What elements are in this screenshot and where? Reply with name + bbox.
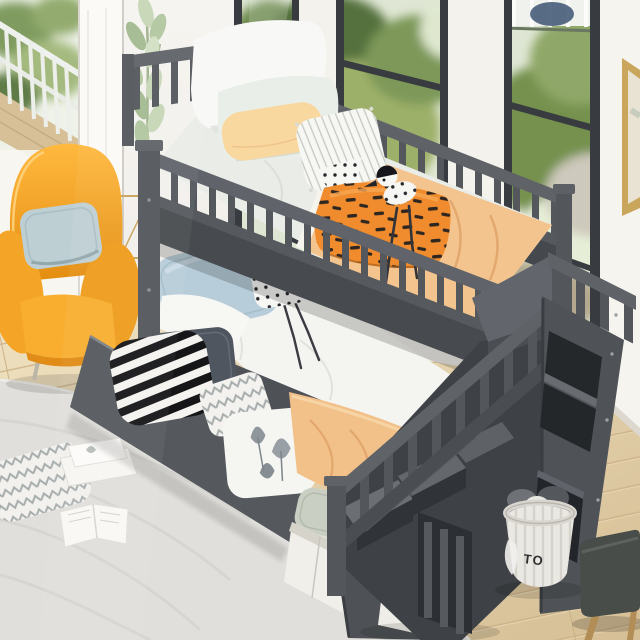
stool-seat: [579, 530, 640, 617]
frame-art: [628, 70, 640, 204]
basket-label: TO: [523, 551, 546, 568]
stool: [572, 530, 640, 640]
scene-illustration: TO: [0, 0, 640, 640]
wall-art-frame: [622, 58, 640, 216]
railing-post: [327, 480, 346, 596]
parked-car-glimpse: [530, 2, 574, 26]
product-photo: Gray twin-over-twin bunk bed with storag…: [0, 0, 640, 640]
stair-lower-slats: [424, 522, 464, 634]
